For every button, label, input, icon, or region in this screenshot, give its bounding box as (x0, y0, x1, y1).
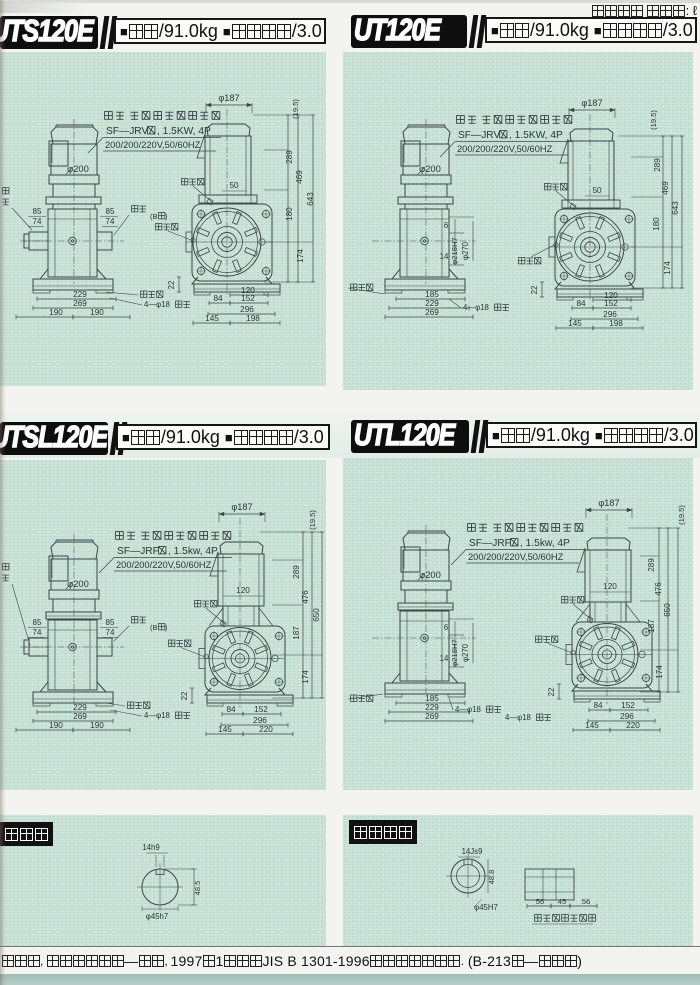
svg-text:187: 187 (647, 619, 656, 633)
svg-text:48.8: 48.8 (487, 870, 496, 885)
svg-text:145: 145 (205, 314, 219, 323)
svg-text:174: 174 (655, 665, 664, 679)
svg-text:22: 22 (167, 281, 176, 290)
svg-text:4―φ18: 4―φ18 (144, 711, 170, 720)
svg-text:74: 74 (106, 217, 115, 226)
svg-text:220: 220 (259, 725, 273, 734)
svg-text:476: 476 (301, 590, 310, 604)
svg-text:φ218H7: φ218H7 (450, 639, 459, 666)
svg-text:289: 289 (292, 565, 301, 579)
svg-text:643: 643 (306, 192, 315, 206)
svg-text:190: 190 (90, 721, 104, 730)
svg-text:SF―JRF: SF―JRF (469, 538, 511, 549)
svg-text:85: 85 (33, 618, 42, 627)
svg-text:152: 152 (241, 294, 255, 303)
svg-text:476: 476 (654, 582, 663, 596)
svg-text:185: 185 (425, 290, 439, 299)
svg-text:145: 145 (218, 725, 232, 734)
svg-text:84: 84 (576, 299, 586, 308)
svg-text:22: 22 (530, 286, 539, 295)
svg-text:22: 22 (180, 692, 189, 701)
svg-text:50: 50 (592, 186, 602, 195)
svg-text:650: 650 (663, 603, 672, 617)
svg-text:200/200/220V,50/60HZ: 200/200/220V,50/60HZ (116, 560, 212, 570)
svg-text:469: 469 (295, 170, 304, 184)
svg-text:φ187: φ187 (581, 98, 602, 108)
svg-text:229: 229 (425, 703, 439, 712)
svg-text:(19.5): (19.5) (308, 510, 317, 530)
svg-text:74: 74 (106, 628, 115, 637)
svg-text:4―φ18: 4―φ18 (144, 300, 170, 309)
svg-text:190: 190 (49, 308, 63, 317)
svg-text:650: 650 (312, 608, 321, 622)
svg-text:22: 22 (547, 688, 556, 697)
svg-text:φ187: φ187 (218, 93, 239, 103)
svg-text:229: 229 (73, 290, 87, 299)
svg-text:198: 198 (246, 314, 260, 323)
svg-text:φ187: φ187 (598, 498, 619, 508)
svg-text:174: 174 (301, 670, 310, 684)
svg-text:120: 120 (603, 582, 617, 591)
svg-text:): ) (165, 212, 168, 221)
svg-text:14Js9: 14Js9 (462, 847, 483, 856)
svg-text:296: 296 (620, 712, 634, 721)
svg-text:φ200: φ200 (419, 163, 441, 174)
svg-text:56: 56 (582, 897, 590, 906)
svg-text:(B: (B (150, 623, 158, 632)
svg-text:48.5: 48.5 (193, 881, 202, 896)
svg-text:289: 289 (285, 150, 294, 164)
svg-text:289: 289 (653, 158, 662, 172)
svg-text:174: 174 (663, 261, 672, 275)
svg-text:269: 269 (73, 299, 87, 308)
svg-text:180: 180 (652, 217, 661, 231)
svg-text:269: 269 (73, 712, 87, 721)
svg-text:190: 190 (49, 721, 63, 730)
svg-text:74: 74 (33, 628, 42, 637)
svg-text:145: 145 (585, 721, 599, 730)
svg-text:469: 469 (661, 181, 670, 195)
svg-text:45: 45 (558, 897, 566, 906)
svg-text:(19.5): (19.5) (291, 99, 300, 119)
svg-text:296: 296 (240, 305, 254, 314)
svg-text:152: 152 (254, 705, 268, 714)
svg-text:(B: (B (150, 212, 158, 221)
svg-text:, 1.5kw, 4P: , 1.5kw, 4P (520, 538, 570, 549)
svg-text:84: 84 (593, 701, 603, 710)
svg-text:269: 269 (425, 308, 439, 317)
svg-text:187: 187 (292, 626, 301, 640)
svg-text:14h9: 14h9 (142, 843, 159, 852)
svg-text:(19.5): (19.5) (649, 110, 658, 130)
svg-text:φ187: φ187 (231, 502, 252, 512)
svg-text:296: 296 (603, 310, 617, 319)
svg-text:145: 145 (568, 319, 582, 328)
svg-text:185: 185 (425, 694, 439, 703)
svg-text:85: 85 (106, 618, 115, 627)
svg-text:φ218H7: φ218H7 (450, 237, 459, 264)
svg-text:643: 643 (671, 201, 680, 215)
svg-text:14: 14 (440, 654, 449, 663)
svg-text:φ200: φ200 (419, 569, 441, 580)
svg-text:198: 198 (609, 319, 623, 328)
svg-text:φ200: φ200 (67, 578, 89, 589)
svg-text:289: 289 (647, 558, 656, 572)
svg-text:120: 120 (236, 586, 250, 595)
svg-text:269: 269 (425, 712, 439, 721)
svg-text:4―φ18: 4―φ18 (463, 303, 489, 312)
svg-text:φ45h7: φ45h7 (146, 912, 168, 921)
svg-text:4―φ18: 4―φ18 (455, 705, 481, 714)
svg-text:SF―JRF: SF―JRF (117, 546, 159, 557)
svg-text:152: 152 (621, 701, 635, 710)
svg-text:4―φ18: 4―φ18 (505, 713, 531, 722)
svg-text:, 1.5KW, 4P: , 1.5KW, 4P (157, 126, 211, 137)
svg-text:, 1.5KW, 4P: , 1.5KW, 4P (509, 130, 563, 141)
svg-text:85: 85 (106, 207, 115, 216)
svg-text:200/200/220V,50/60HZ: 200/200/220V,50/60HZ (468, 552, 564, 562)
svg-text:220: 220 (626, 721, 640, 730)
svg-text:190: 190 (90, 308, 104, 317)
svg-text:74: 74 (33, 217, 42, 226)
svg-text:229: 229 (425, 299, 439, 308)
svg-text:174: 174 (296, 249, 305, 263)
svg-text:): ) (165, 623, 168, 632)
svg-text:14: 14 (440, 252, 449, 261)
svg-text:50: 50 (229, 181, 239, 190)
svg-text:152: 152 (604, 299, 618, 308)
svg-text:SF―JRV: SF―JRV (458, 130, 500, 141)
svg-text:296: 296 (253, 716, 267, 725)
svg-text:(19.5): (19.5) (677, 505, 686, 525)
svg-text:200/200/220V,50/60HZ: 200/200/220V,50/60HZ (105, 140, 201, 150)
svg-text:85: 85 (33, 207, 42, 216)
svg-text:SF―JRV: SF―JRV (106, 126, 148, 137)
svg-text:6: 6 (444, 221, 448, 230)
svg-text:φ270: φ270 (461, 643, 470, 662)
svg-text:56: 56 (536, 897, 544, 906)
svg-text:, 1.5kw, 4P: , 1.5kw, 4P (168, 546, 218, 557)
svg-text:6: 6 (444, 623, 448, 632)
svg-text:84: 84 (213, 294, 223, 303)
svg-text:229: 229 (73, 703, 87, 712)
svg-text:φ200: φ200 (67, 163, 89, 174)
svg-text:84: 84 (226, 705, 236, 714)
svg-text:φ270: φ270 (461, 241, 470, 260)
svg-text:180: 180 (285, 207, 294, 221)
svg-text:200/200/220V,50/60HZ: 200/200/220V,50/60HZ (457, 144, 553, 154)
svg-text:φ45H7: φ45H7 (474, 903, 498, 912)
